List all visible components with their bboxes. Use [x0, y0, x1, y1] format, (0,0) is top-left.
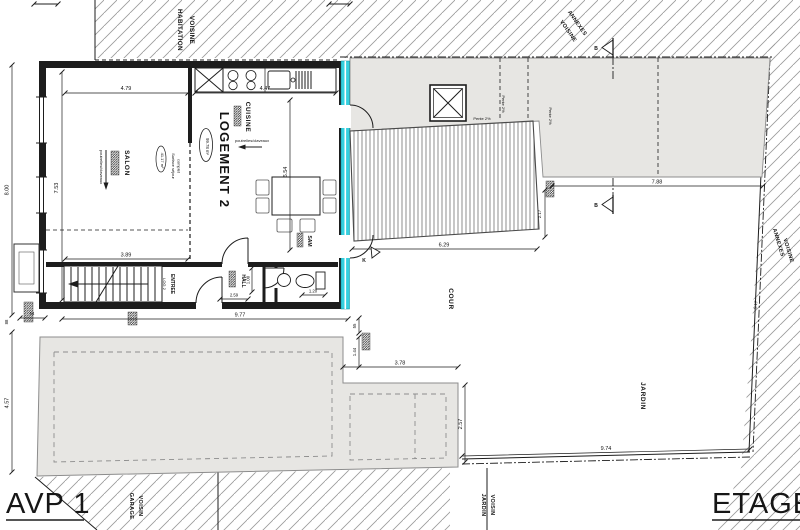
chair — [323, 198, 336, 213]
label-section-b-bottom: B — [594, 203, 598, 209]
note-beams-salon: poutrelles/claveaux — [99, 150, 104, 184]
dim-800: 8.00 — [5, 185, 11, 196]
label-jardin: JARDIN — [639, 382, 646, 410]
label-salon: SALON — [123, 150, 130, 176]
hatch-top-habitation — [95, 0, 775, 58]
dim-788: 7.88 — [652, 180, 663, 186]
dim-54: 54 — [30, 311, 35, 316]
label-habitation-voisine-1: HABITATION — [176, 9, 183, 51]
toilet-tank — [316, 272, 325, 289]
dim-257: 2.57 — [458, 419, 464, 430]
staircase — [64, 266, 162, 302]
wash-basin — [278, 274, 291, 287]
pente-label-1: Pente 2% — [501, 95, 506, 113]
dim-217: 2.17 — [537, 209, 542, 218]
hatch-bottom-garage — [35, 468, 450, 530]
dim-479: 4.79 — [121, 86, 132, 92]
label-garage-voisin-1: GARAGE — [128, 493, 134, 520]
dim-629: 6.29 — [439, 243, 450, 249]
label-cuisine: CUISINE — [244, 102, 251, 133]
skylight — [430, 85, 466, 121]
dim-753: 7.53 — [54, 183, 60, 194]
title-right: ETAGE — [712, 488, 800, 520]
label-section-k: K — [362, 258, 366, 264]
chair — [323, 180, 336, 195]
canopy-roof — [350, 121, 539, 241]
label-section-b-top: B — [594, 46, 598, 52]
label-logement: LOGEMENT 2 — [217, 112, 232, 209]
dim-259: 2.59 — [230, 293, 239, 298]
terrace-slab — [37, 337, 458, 476]
label-sejour-area: 41.17 m² — [160, 153, 165, 169]
dim-977: 9.77 — [235, 313, 246, 319]
note-sejour-2: complet — [177, 159, 182, 174]
windows-left-wall — [14, 97, 47, 293]
label-entree: ENTREE — [169, 274, 175, 295]
door-opening-hall — [222, 260, 248, 269]
label-logement-area: 99.78 m² — [205, 138, 210, 156]
dim-144: 1.44 — [352, 347, 357, 356]
dim-378: 3.78 — [395, 361, 406, 367]
title-left: AVP 1 — [6, 488, 91, 520]
chair — [256, 180, 269, 195]
pente-label-3: Pente 2% — [473, 116, 491, 121]
dim-654: 6.54 — [283, 167, 289, 178]
dim-120: 1.20 — [309, 289, 318, 294]
chair — [300, 219, 315, 232]
dim-974: 9.74 — [601, 446, 612, 452]
canopy-striped-slab — [350, 121, 539, 241]
note-beams-cuisine: poutrelles/claveaux — [235, 138, 269, 143]
dim-55: 55 — [352, 323, 357, 328]
door-opening-cour-1 — [339, 105, 351, 128]
note-sejour-1: Surface séjour — [171, 153, 176, 179]
label-hall: HALL — [240, 274, 246, 287]
label-jardin-voisin-1: JARDIN — [480, 494, 486, 517]
window-bay — [14, 244, 39, 292]
door-opening-cour-2 — [339, 235, 351, 258]
dim-447: 4.47 — [260, 86, 271, 92]
floor-plan-page: Pente 2% Pente 2% Pente 2% — [0, 0, 800, 530]
label-jardin-voisin-2: VOISIN — [489, 494, 495, 515]
label-sam: SAM — [306, 235, 312, 246]
pente-label-2: Pente 2% — [548, 107, 553, 125]
label-habitation-voisine-2: VOISINE — [188, 16, 195, 44]
label-garage-voisin-2: VOISIN — [137, 495, 143, 516]
label-cour: COUR — [447, 288, 454, 310]
dim-457: 4.57 — [5, 398, 11, 409]
dim-389: 3.89 — [121, 253, 132, 259]
chair — [256, 198, 269, 213]
section-arrow-b-bottom — [602, 197, 613, 212]
label-entree-sub: LOG 2 — [162, 278, 167, 291]
dim-88: 88 — [4, 319, 9, 324]
floor-plan-svg: Pente 2% Pente 2% Pente 2% — [0, 0, 800, 530]
toilet-bowl — [296, 275, 314, 288]
